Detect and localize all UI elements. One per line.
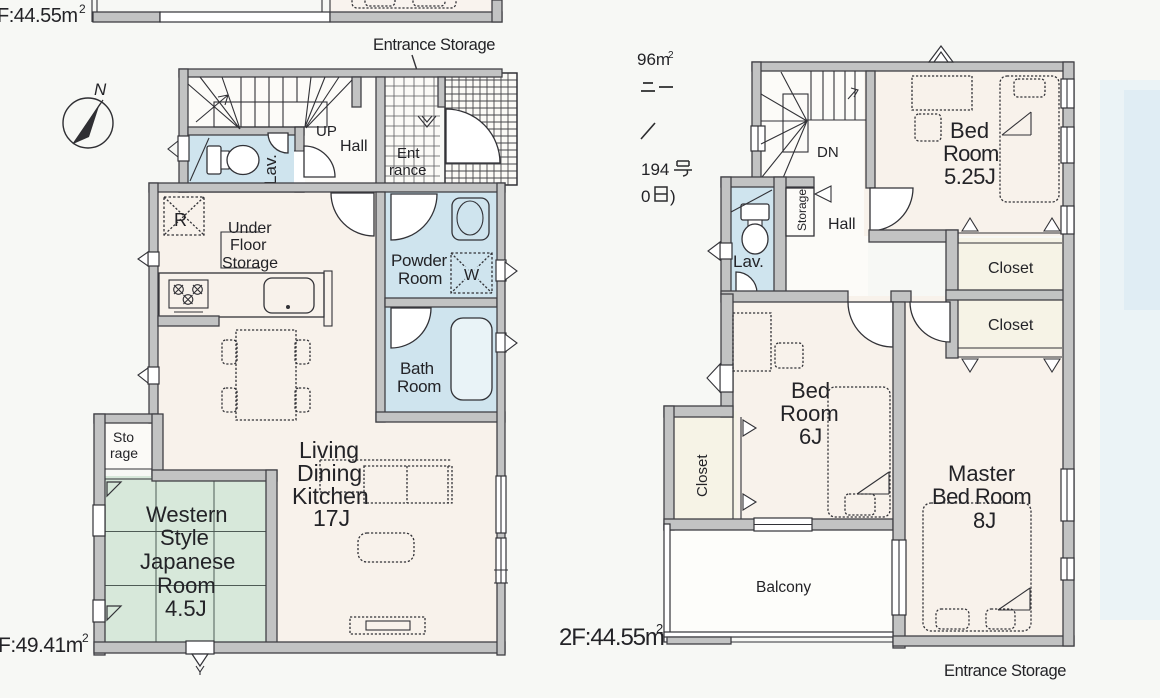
svg-text:Room: Room <box>398 269 442 288</box>
svg-text:Storage: Storage <box>795 189 809 231</box>
svg-text:rage: rage <box>110 445 138 461</box>
svg-text:): ) <box>670 187 676 206</box>
svg-text:Closet: Closet <box>988 317 1034 334</box>
svg-text:UP: UP <box>316 123 337 140</box>
svg-text:F:49.41m: F:49.41m <box>0 634 83 657</box>
svg-text:5.25J: 5.25J <box>944 164 995 189</box>
svg-text:Room: Room <box>397 377 441 396</box>
svg-text:W: W <box>464 267 480 284</box>
svg-text:2: 2 <box>79 2 86 16</box>
svg-text:Room: Room <box>780 401 839 426</box>
svg-text:Entrance Storage: Entrance Storage <box>373 36 495 54</box>
svg-text:Japanese: Japanese <box>140 549 235 574</box>
svg-text:Master: Master <box>948 461 1015 486</box>
svg-text:Hall: Hall <box>340 138 368 155</box>
svg-text:Bed: Bed <box>791 378 830 403</box>
svg-text:Floor: Floor <box>230 237 267 254</box>
svg-text:R: R <box>174 210 187 230</box>
svg-text:6J: 6J <box>799 424 822 449</box>
svg-text:96m: 96m <box>637 50 670 69</box>
svg-text:Bed Room: Bed Room <box>932 484 1031 509</box>
svg-text:Style: Style <box>160 525 209 550</box>
svg-text:Hall: Hall <box>828 216 856 233</box>
svg-text:rance: rance <box>389 162 427 179</box>
svg-text:Room: Room <box>157 573 216 598</box>
svg-text:Entrance Storage: Entrance Storage <box>944 662 1066 680</box>
svg-text:Lav.: Lav. <box>261 154 280 185</box>
svg-text:Lav.: Lav. <box>733 252 764 271</box>
svg-text:Ent: Ent <box>397 145 420 162</box>
svg-text:F:44.55m: F:44.55m <box>0 5 77 27</box>
svg-text:4.5J: 4.5J <box>165 596 207 621</box>
svg-text:Sto: Sto <box>113 429 134 445</box>
svg-text:Storage: Storage <box>222 255 278 272</box>
svg-text:Bed: Bed <box>950 118 989 143</box>
svg-text:2F:44.55m: 2F:44.55m <box>559 624 664 651</box>
svg-text:17J: 17J <box>313 505 350 531</box>
svg-text:Closet: Closet <box>988 260 1034 277</box>
svg-text:Western: Western <box>146 502 228 527</box>
svg-text:Room: Room <box>943 141 999 166</box>
svg-text:8J: 8J <box>973 508 996 533</box>
svg-text:2: 2 <box>82 631 89 645</box>
svg-text:2: 2 <box>668 50 674 61</box>
svg-text:194: 194 <box>641 160 669 179</box>
svg-text:Balcony: Balcony <box>756 579 811 596</box>
svg-text:0: 0 <box>641 187 650 206</box>
svg-text:N: N <box>94 80 107 99</box>
svg-text:Closet: Closet <box>694 454 711 497</box>
svg-text:DN: DN <box>817 144 839 161</box>
svg-text:Powder: Powder <box>391 251 447 270</box>
svg-text:2: 2 <box>656 621 663 636</box>
svg-text:Under: Under <box>228 220 272 237</box>
svg-text:Bath: Bath <box>400 359 434 378</box>
